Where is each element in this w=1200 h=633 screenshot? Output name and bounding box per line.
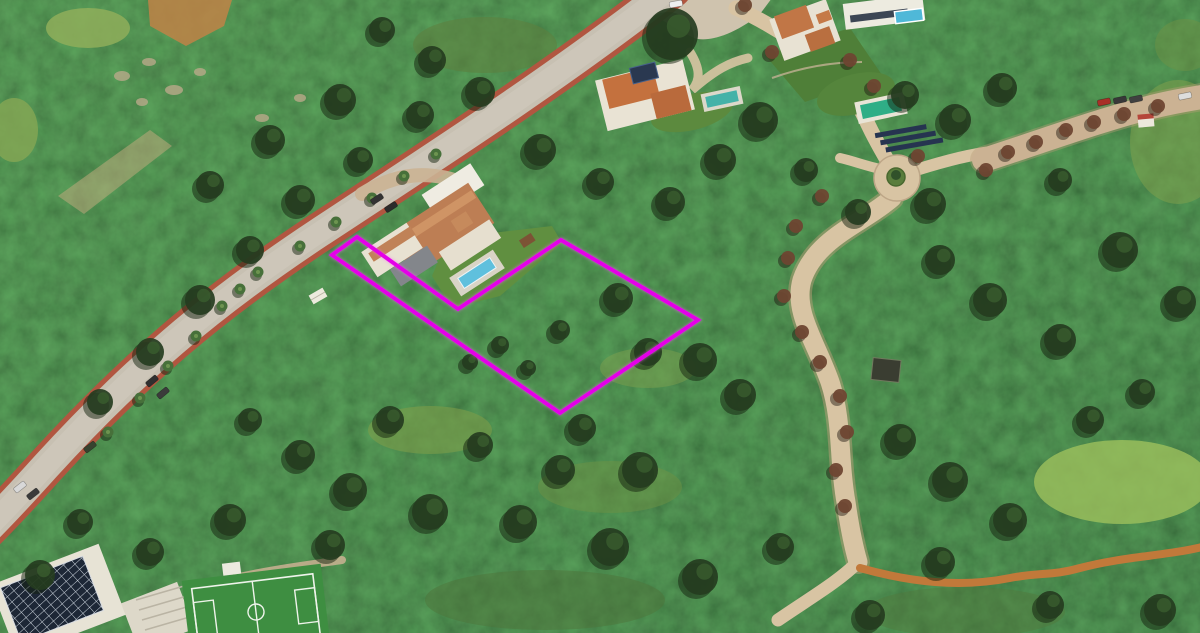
palm-crown [298,244,302,248]
tree-highlight [946,467,962,483]
tree-highlight [248,411,259,422]
tree-highlight [902,85,915,98]
tree-highlight [429,50,442,63]
rust-tree [1087,115,1101,129]
tree-highlight [526,362,533,369]
tree-highlight [477,435,489,447]
aerial-photo-canvas [0,0,1200,633]
tree-highlight [606,533,623,550]
tree-highlight [379,20,391,32]
tree-highlight [667,191,681,205]
tree-highlight [558,323,567,332]
roundabout-tree [891,170,901,180]
tree-highlight [147,542,160,555]
tree-highlight [737,383,751,397]
rust-tree [829,463,843,477]
rock [136,98,148,106]
rust-tree [765,45,779,59]
meadow-patch [425,570,665,630]
rock [294,94,306,102]
tree-highlight [426,499,442,515]
tree-highlight [897,428,911,442]
tree-highlight [337,88,351,102]
palm-crown [434,152,438,156]
tree-highlight [697,347,712,362]
rust-tree [795,325,809,339]
pitch-hut [222,562,241,576]
tree-highlight [347,477,362,492]
tree-highlight [327,534,341,548]
red-roof-hut [1137,113,1154,127]
palm-crown [194,334,198,338]
tree-highlight [756,107,772,123]
palm-crown [256,270,260,274]
tree-highlight [517,509,532,524]
meadow-patch [46,8,130,48]
rust-tree [911,149,925,163]
palm-crown [334,220,338,224]
palm-crown [138,396,142,400]
palm-crown [106,430,110,434]
palm-crown [402,174,406,178]
rust-tree [867,79,881,93]
tree-highlight [696,564,712,580]
tree-highlight [1047,595,1060,608]
tree-highlight [77,512,89,524]
rust-tree [777,289,791,303]
tree-highlight [999,77,1013,91]
rust-tree [843,53,857,67]
dark-shed [871,358,901,383]
rust-tree [833,389,847,403]
tree-highlight [97,392,109,404]
tree-highlight [498,338,506,346]
tree-highlight [1116,237,1132,253]
tree-highlight [1007,507,1022,522]
palm-crown [238,287,242,291]
tree-highlight [937,551,951,565]
tree-highlight [37,564,51,578]
rock [142,58,156,66]
tree-highlight [207,175,220,188]
tree-highlight [867,604,881,618]
tree-highlight [147,342,160,355]
tree-highlight [1057,328,1071,342]
rust-tree [813,355,827,369]
rust-tree [1117,107,1131,121]
rust-tree [781,251,795,265]
tree-highlight [267,129,281,143]
tree-highlight [297,189,311,203]
tree-highlight [1139,382,1151,394]
tree-highlight [468,356,475,363]
tree-highlight [717,148,731,162]
tree-highlight [667,15,690,38]
rust-tree [979,163,993,177]
rust-tree [1001,145,1015,159]
rock [194,68,206,76]
rock [114,71,130,81]
tree-highlight [777,537,790,550]
tree-highlight [387,410,400,423]
tree-highlight [477,81,491,95]
tree-highlight [1058,171,1069,182]
tree-highlight [1087,410,1100,423]
dark-shed-roof [871,358,901,383]
tree-highlight [952,108,966,122]
rust-tree [840,425,854,439]
tree-highlight [1157,598,1171,612]
tree-highlight [227,508,241,522]
rock [165,85,183,95]
tree-highlight [579,418,592,431]
palm-crown [220,304,224,308]
tree-highlight [636,457,652,473]
rust-tree [1029,135,1043,149]
rust-tree [789,219,803,233]
tree-highlight [537,138,551,152]
rust-tree [838,499,852,513]
tree-highlight [927,192,941,206]
tree-highlight [937,249,951,263]
tree-highlight [557,459,571,473]
tree-highlight [804,161,815,172]
tree-highlight [247,240,260,253]
tree-highlight [615,287,629,301]
aerial-photo [0,0,1200,633]
tree-highlight [417,105,430,118]
tree-highlight [1177,290,1191,304]
rust-tree [815,189,829,203]
tree-highlight [357,150,369,162]
rust-tree [1059,123,1073,137]
tree-highlight [197,289,211,303]
modern-building-pool [894,8,923,23]
tree-highlight [855,202,867,214]
tree-highlight [597,172,610,185]
palm-crown [166,364,170,368]
rock [255,114,269,122]
tree-highlight [987,287,1002,302]
tree-highlight [297,444,311,458]
rust-tree [1151,99,1165,113]
